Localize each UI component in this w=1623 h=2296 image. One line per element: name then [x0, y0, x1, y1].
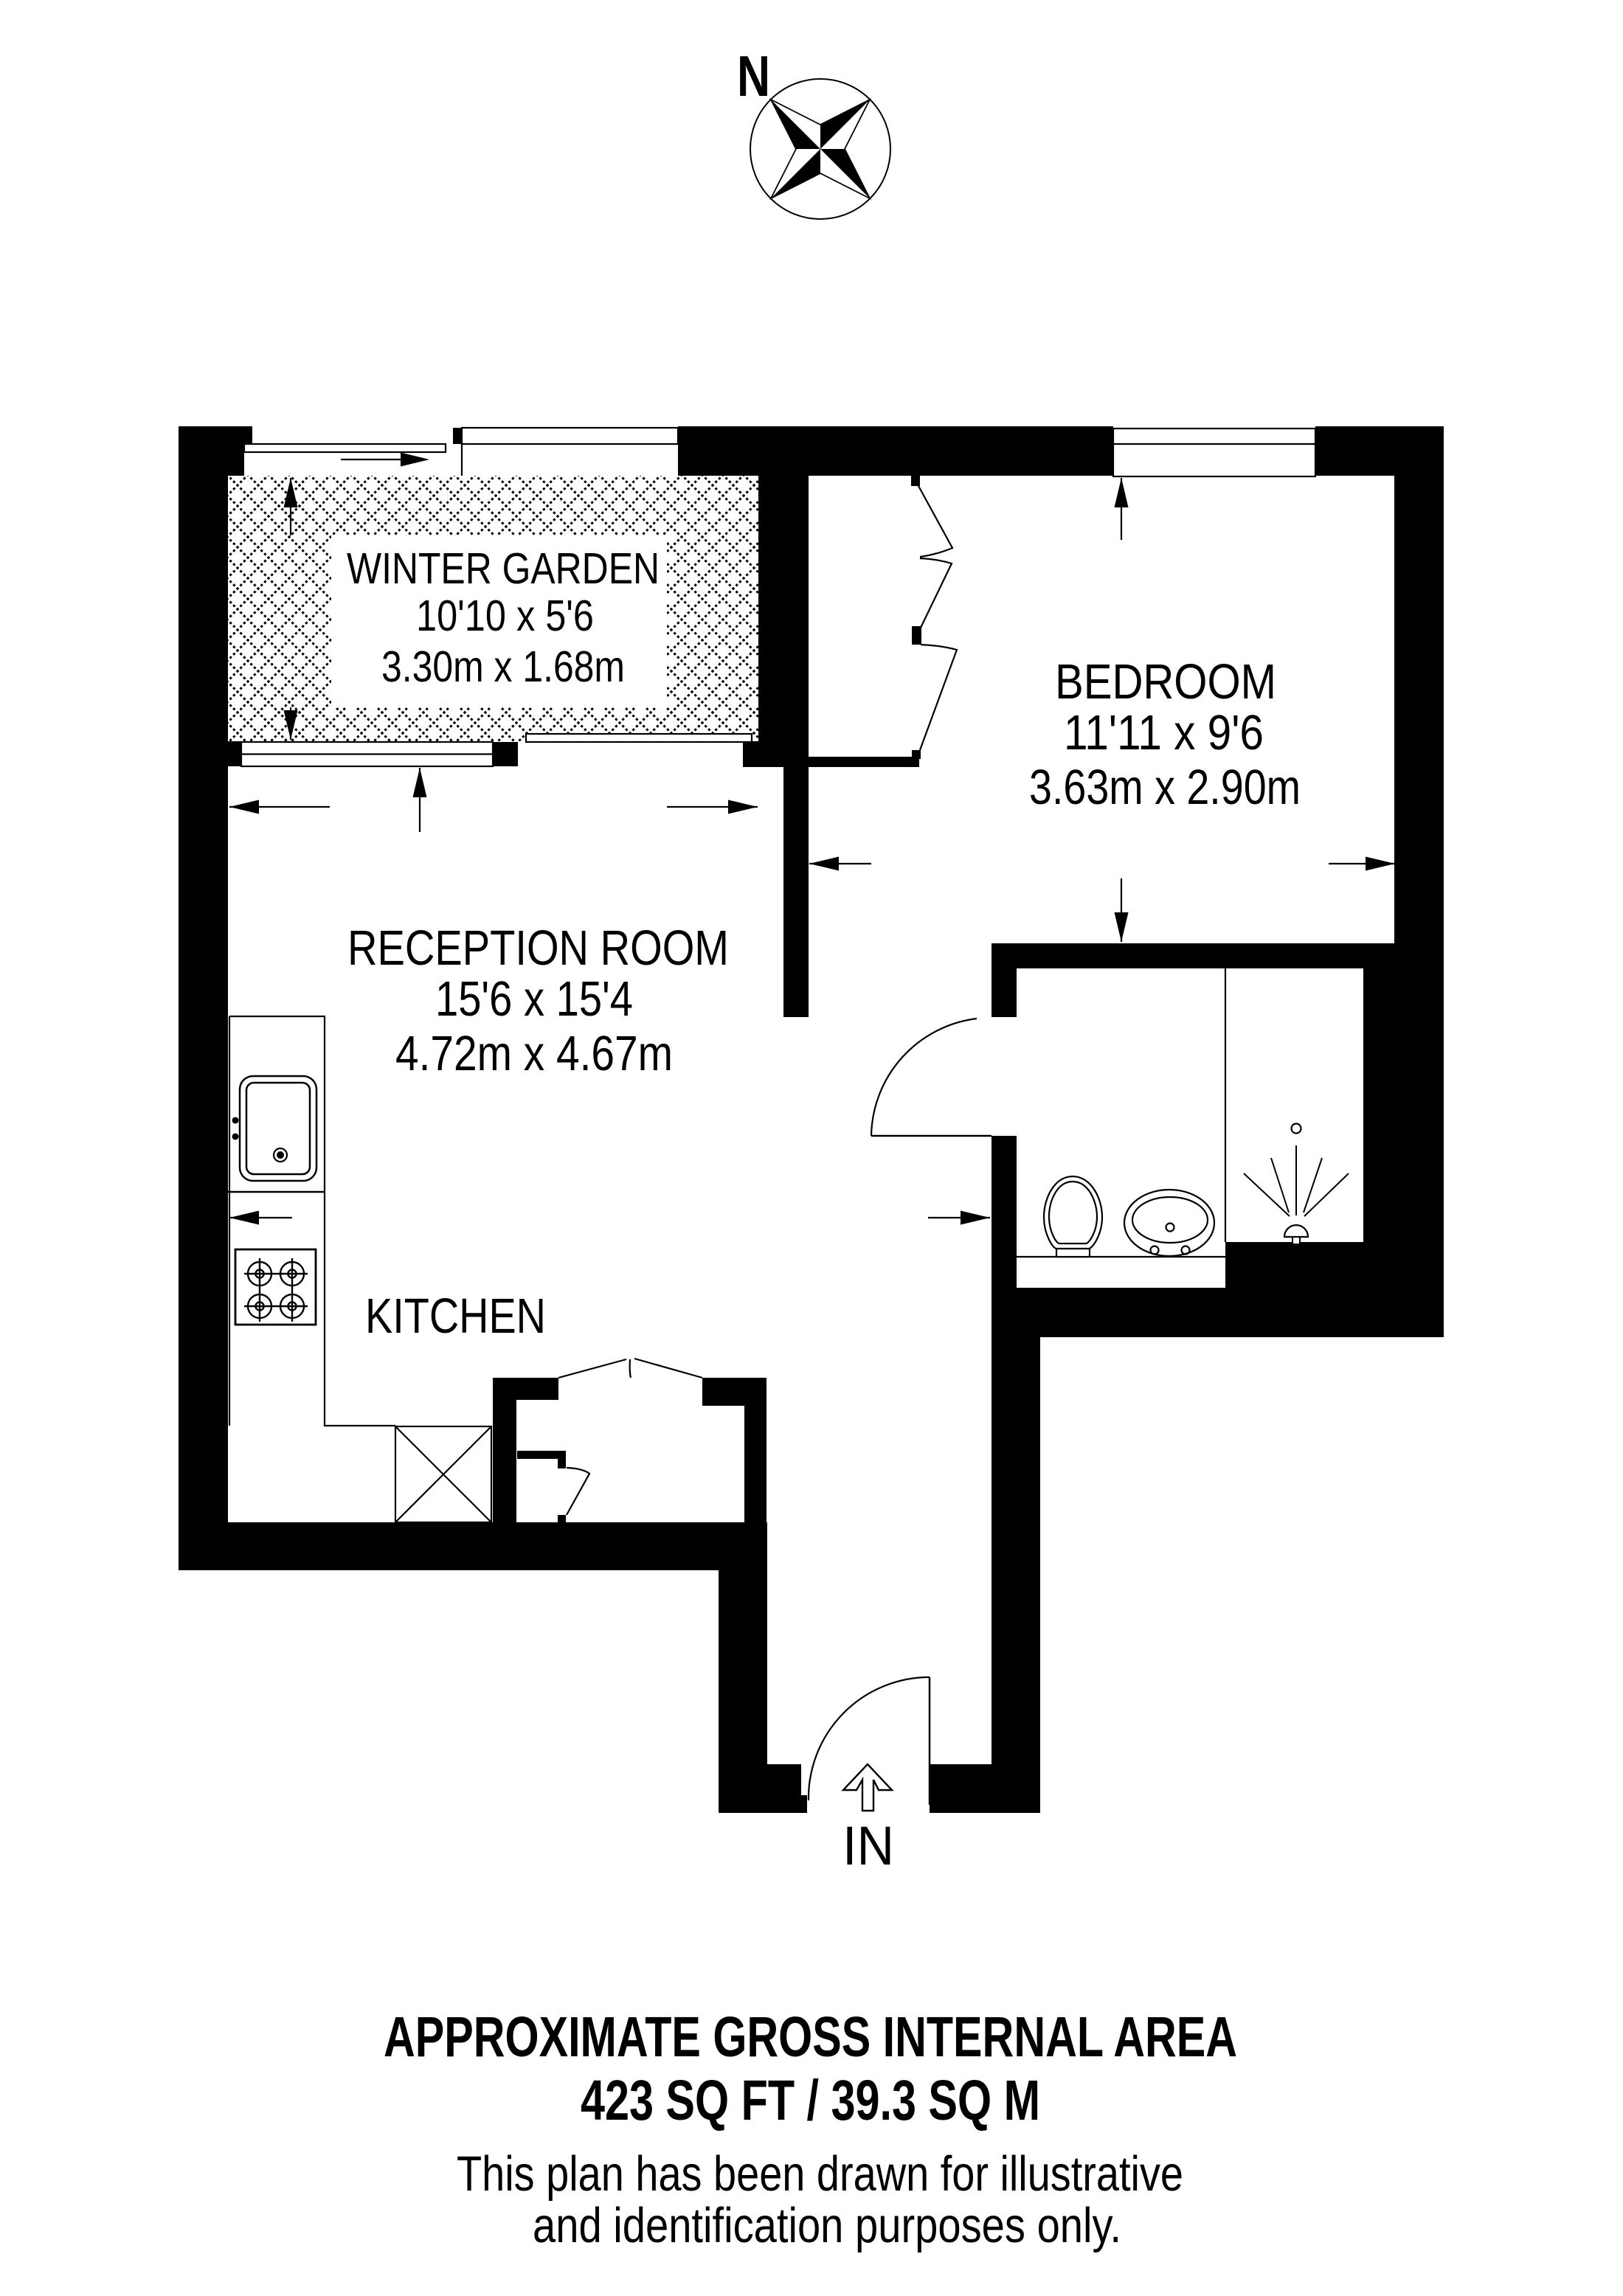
svg-text:This plan has been drawn for i: This plan has been drawn for illustrativ… [457, 2146, 1183, 2202]
svg-text:11'11 x 9'6: 11'11 x 9'6 [1064, 705, 1264, 760]
svg-text:and identification purposes on: and identification purposes only. [533, 2198, 1121, 2253]
svg-text:BEDROOM: BEDROOM [1055, 654, 1276, 710]
svg-text:4.72m x 4.67m: 4.72m x 4.67m [395, 1026, 673, 1081]
svg-text:15'6 x 15'4: 15'6 x 15'4 [435, 971, 633, 1027]
svg-text:10'10 x 5'6: 10'10 x 5'6 [416, 592, 594, 640]
svg-text:423 SQ FT / 39.3 SQ M: 423 SQ FT / 39.3 SQ M [581, 2069, 1040, 2132]
svg-text:IN: IN [842, 1815, 894, 1876]
svg-text:APPROXIMATE GROSS INTERNAL ARE: APPROXIMATE GROSS INTERNAL AREA [384, 2005, 1237, 2069]
svg-text:3.30m x 1.68m: 3.30m x 1.68m [381, 642, 625, 691]
svg-text:N: N [737, 44, 770, 108]
svg-text:WINTER GARDEN: WINTER GARDEN [347, 544, 660, 593]
svg-text:KITCHEN: KITCHEN [365, 1289, 546, 1344]
svg-text:RECEPTION ROOM: RECEPTION ROOM [347, 920, 729, 976]
svg-text:3.63m x 2.90m: 3.63m x 2.90m [1029, 760, 1301, 815]
